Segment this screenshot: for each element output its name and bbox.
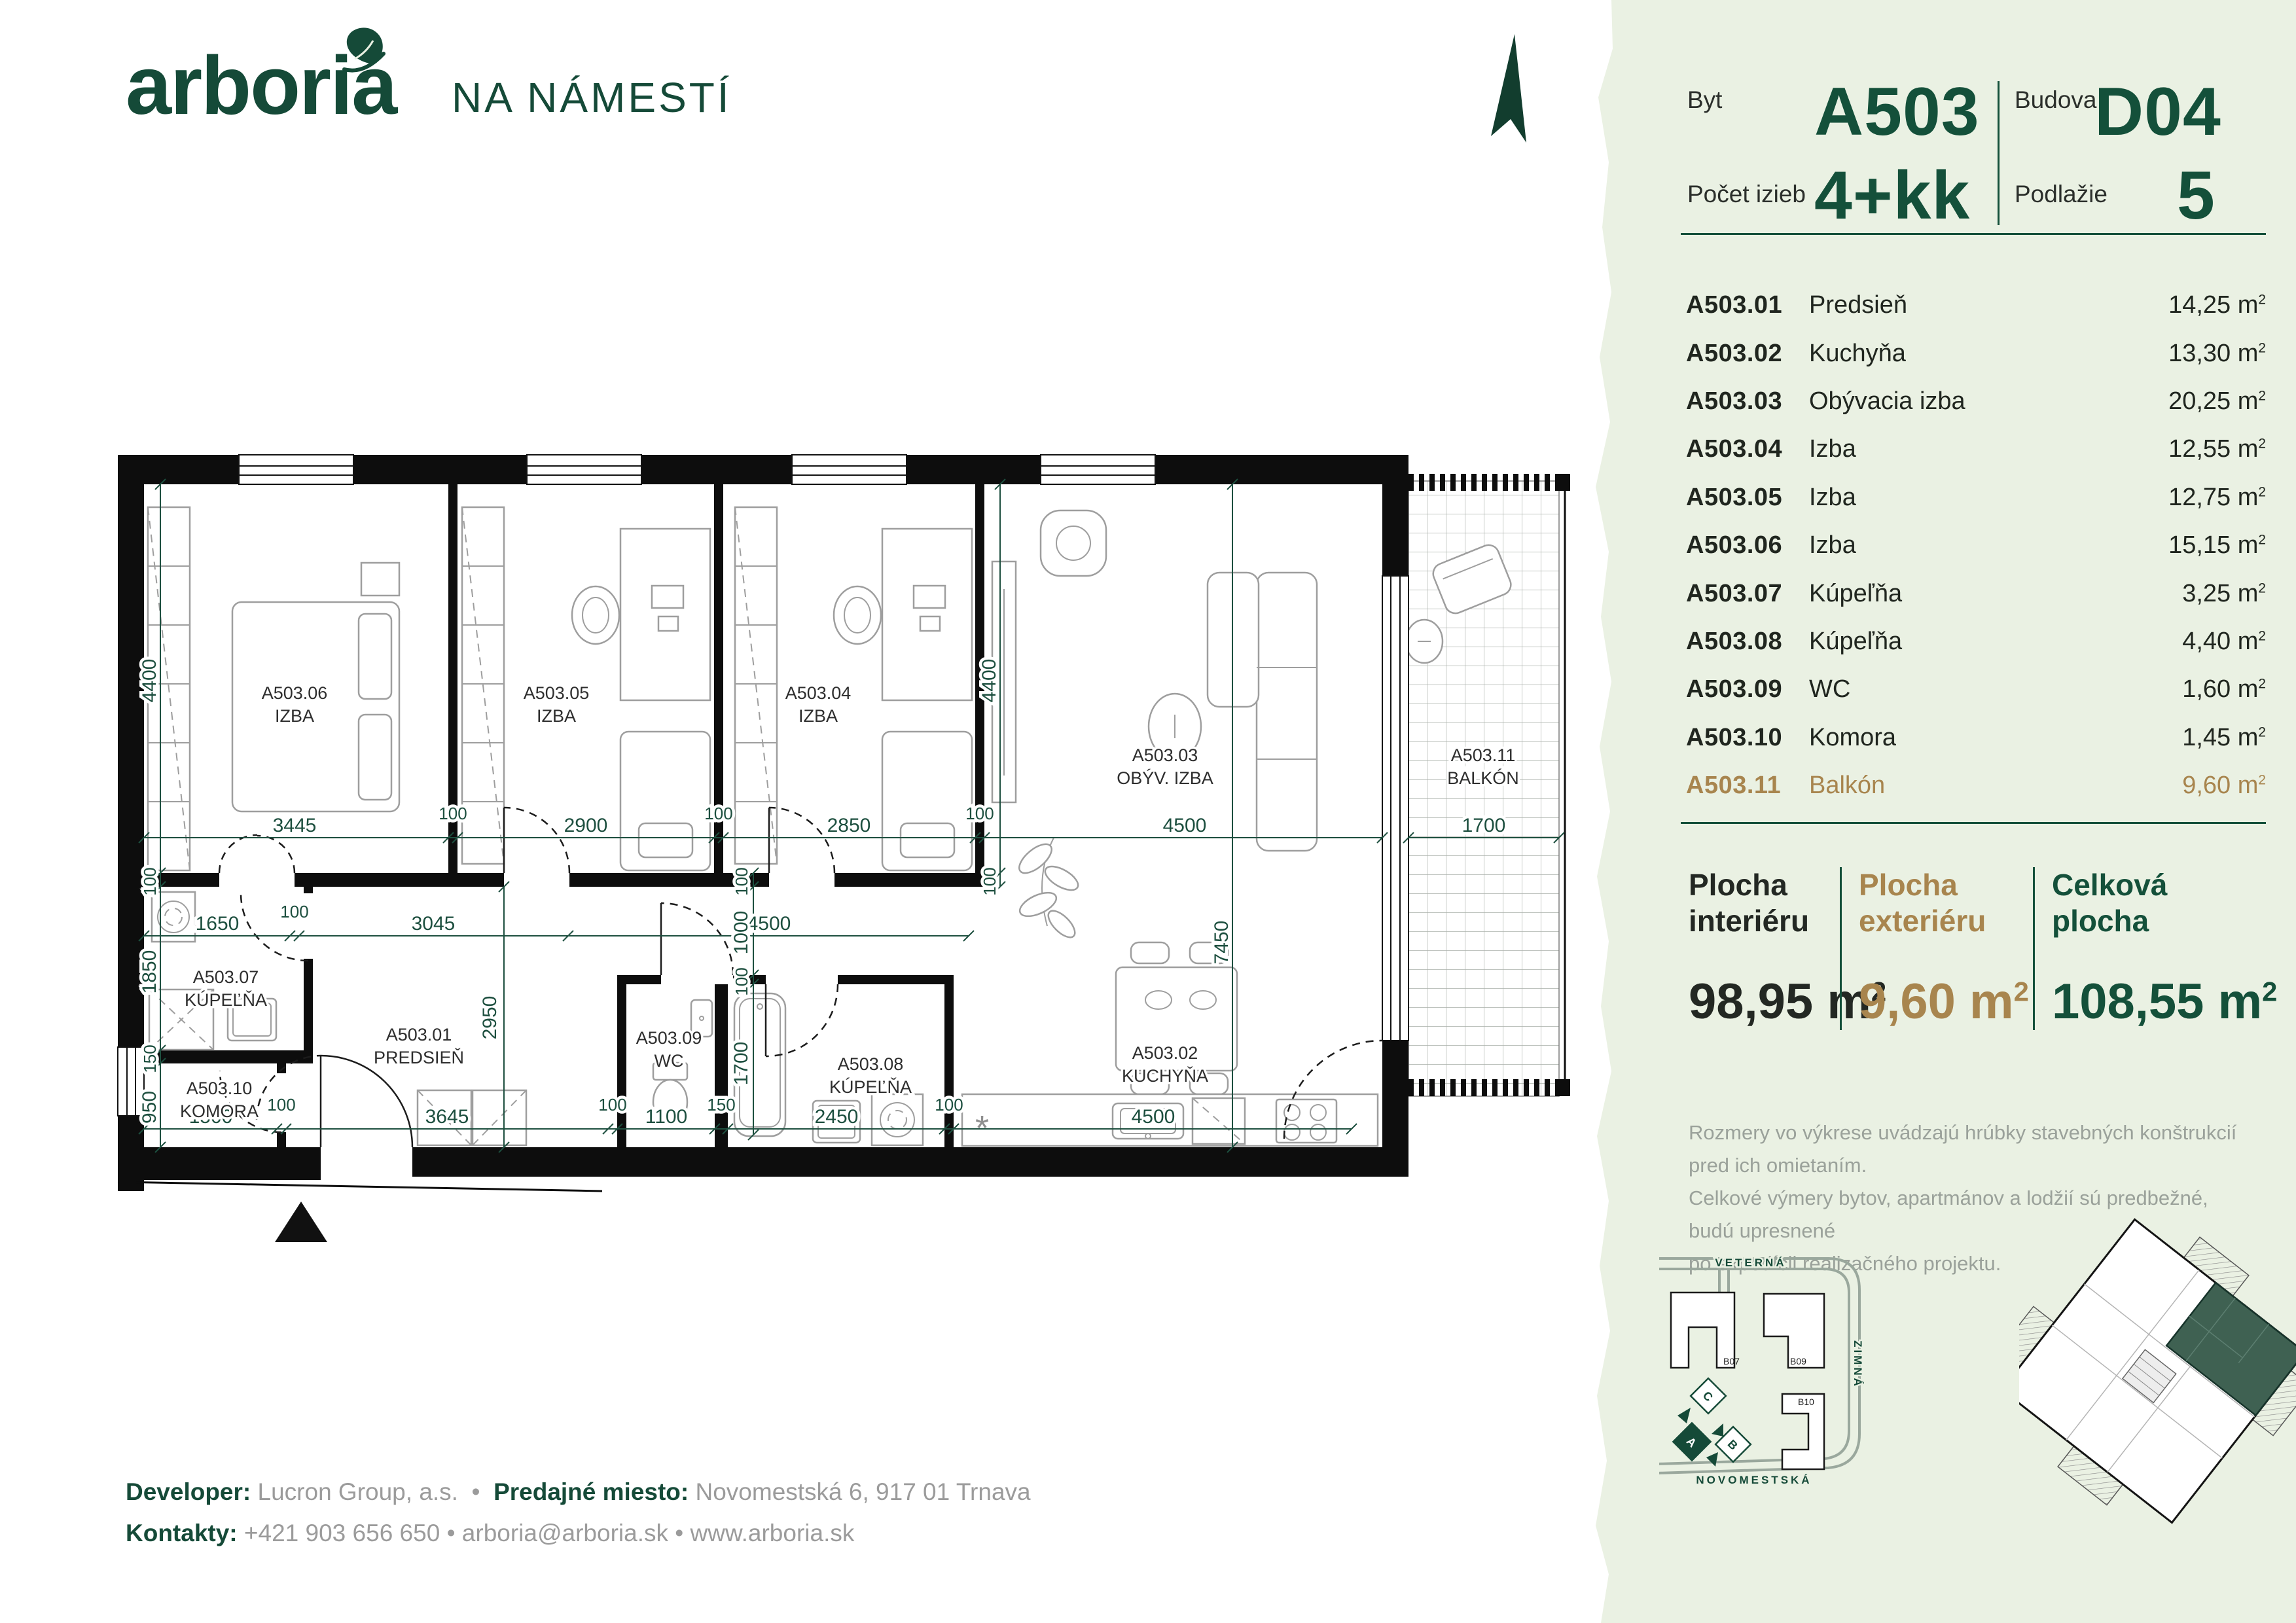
svg-text:4500: 4500 xyxy=(1163,815,1207,836)
svg-text:A503.07: A503.07 xyxy=(193,967,259,987)
svg-text:100: 100 xyxy=(267,1095,295,1115)
svg-text:1850: 1850 xyxy=(139,950,160,994)
svg-text:1000: 1000 xyxy=(730,911,752,955)
svg-text:100: 100 xyxy=(965,804,994,823)
table-row: A503.01Predsieň14,25 m2 xyxy=(1686,281,2266,329)
budova-label: Budova xyxy=(2015,86,2097,114)
byt-label: Byt xyxy=(1687,86,1722,114)
svg-text:4500: 4500 xyxy=(1132,1106,1175,1128)
building-b09-label: B09 xyxy=(1790,1356,1806,1366)
table-row: A503.06Izba15,15 m2 xyxy=(1686,522,2266,569)
svg-text:2450: 2450 xyxy=(815,1106,859,1128)
leaf-icon xyxy=(332,26,404,79)
svg-text:100: 100 xyxy=(704,804,732,823)
svg-text:4400: 4400 xyxy=(139,659,160,703)
street-zimna: ZIMNÁ xyxy=(1852,1340,1864,1389)
svg-text:2850: 2850 xyxy=(827,815,871,836)
developer-label: Developer: xyxy=(126,1478,251,1505)
footer: Developer: Lucron Group, a.s. • Predajné… xyxy=(126,1471,1031,1554)
svg-text:A503.01: A503.01 xyxy=(386,1025,452,1044)
svg-text:IZBA: IZBA xyxy=(537,706,576,726)
byt-value: A503 xyxy=(1814,73,1980,151)
svg-text:A503.08: A503.08 xyxy=(838,1054,904,1074)
svg-text:100: 100 xyxy=(598,1095,626,1115)
svg-text:KÚPEĽŇA: KÚPEĽŇA xyxy=(185,990,267,1010)
svg-text:3645: 3645 xyxy=(425,1106,469,1128)
floor-locator xyxy=(2019,1171,2296,1590)
svg-text:A503.10: A503.10 xyxy=(187,1079,253,1098)
svg-text:PREDSIEŇ: PREDSIEŇ xyxy=(374,1047,464,1067)
table-row: A503.07Kúpeľňa3,25 m2 xyxy=(1686,569,2266,617)
street-novomestska: NOVOMESTSKÁ xyxy=(1696,1474,1812,1486)
svg-text:WC: WC xyxy=(655,1051,684,1071)
table-row: A503.08Kúpeľňa4,40 m2 xyxy=(1686,618,2266,666)
north-arrow-icon xyxy=(1484,31,1541,148)
svg-text:3045: 3045 xyxy=(412,913,456,935)
svg-text:150: 150 xyxy=(707,1095,735,1115)
podlazie-label: Podlažie xyxy=(2015,181,2108,208)
kontakty-label: Kontakty: xyxy=(126,1520,238,1546)
svg-text:100: 100 xyxy=(280,902,308,921)
table-row: A503.05Izba12,75 m2 xyxy=(1686,474,2266,522)
building-b10-label: B10 xyxy=(1798,1397,1814,1407)
podlazie-value: 5 xyxy=(2177,157,2215,235)
area-summary: Plochainteriéru 98,95 m2 Plochaexteriéru… xyxy=(1689,867,2265,1030)
svg-text:1700: 1700 xyxy=(1462,815,1506,836)
svg-text:A503.06: A503.06 xyxy=(262,683,328,703)
svg-text:100: 100 xyxy=(732,967,751,995)
pocet-izieb-value: 4+kk xyxy=(1814,157,1970,235)
flat-sheet: arboria NA NÁMESTÍ Byt A503 Budova D04 P… xyxy=(0,0,2296,1623)
block-a: A xyxy=(1672,1422,1711,1461)
svg-text:100: 100 xyxy=(980,867,999,895)
svg-text:A503.11: A503.11 xyxy=(1451,745,1516,765)
dimension-lines: 3445 100 2900 100 2850 100 4500 1700 440… xyxy=(139,479,1564,1152)
svg-text:7450: 7450 xyxy=(1211,921,1232,965)
svg-text:A503.09: A503.09 xyxy=(636,1028,702,1048)
room-table: A503.01Predsieň14,25 m2 A503.02Kuchyňa13… xyxy=(1686,281,2266,810)
header-divider xyxy=(1998,81,2000,225)
table-row: A503.04Izba12,55 m2 xyxy=(1686,425,2266,473)
svg-text:100: 100 xyxy=(439,804,467,823)
svg-text:100: 100 xyxy=(732,867,751,895)
svg-text:KOMORA: KOMORA xyxy=(180,1101,259,1121)
entrance-arrow-icon xyxy=(275,1202,327,1242)
svg-text:1650: 1650 xyxy=(196,913,240,935)
svg-text:A503.03: A503.03 xyxy=(1132,745,1198,765)
table-row: A503.03Obývacia izba20,25 m2 xyxy=(1686,378,2266,425)
summary-total: Celkováplocha 108,55 m2 xyxy=(2033,867,2265,1030)
pocet-izieb-label: Počet izieb xyxy=(1687,181,1806,208)
svg-text:A503.05: A503.05 xyxy=(524,683,590,703)
svg-text:3445: 3445 xyxy=(273,815,317,836)
svg-text:1700: 1700 xyxy=(730,1042,752,1086)
svg-text:4400: 4400 xyxy=(978,659,1000,703)
street-veterna: VETERNÁ xyxy=(1715,1257,1786,1269)
svg-text:100: 100 xyxy=(935,1095,963,1115)
summary-exterior: Plochaexteriéru 9,60 m2 xyxy=(1840,867,2033,1030)
svg-text:A503.02: A503.02 xyxy=(1132,1043,1198,1063)
site-minimap: VETERNÁ ZIMNÁ NOVOMESTSKÁ B07 B09 B10 C … xyxy=(1659,1240,1901,1508)
svg-text:IZBA: IZBA xyxy=(798,706,838,726)
project-name: NA NÁMESTÍ xyxy=(452,73,732,122)
plant xyxy=(1014,838,1082,942)
svg-text:1100: 1100 xyxy=(645,1106,688,1128)
svg-text:950: 950 xyxy=(139,1091,160,1124)
table-row-balkon: A503.11Balkón9,60 m2 xyxy=(1686,762,2266,810)
svg-text:OBÝV. IZBA: OBÝV. IZBA xyxy=(1117,768,1213,788)
building-b07-label: B07 xyxy=(1723,1356,1740,1366)
summary-interior: Plochainteriéru 98,95 m2 xyxy=(1689,867,1840,1030)
budova-value: D04 xyxy=(2094,73,2221,151)
table-bottom-rule xyxy=(1681,822,2266,824)
balcony-sliding-door xyxy=(1382,576,1408,1041)
table-row: A503.09WC1,60 m2 xyxy=(1686,666,2266,713)
svg-text:KÚPEĽŇA: KÚPEĽŇA xyxy=(829,1077,912,1097)
svg-text:BALKÓN: BALKÓN xyxy=(1447,768,1519,788)
floor-plan: * xyxy=(98,419,1571,1243)
table-row: A503.02Kuchyňa13,30 m2 xyxy=(1686,329,2266,377)
svg-text:4500: 4500 xyxy=(747,913,791,935)
svg-text:KUCHYŇA: KUCHYŇA xyxy=(1122,1065,1208,1086)
svg-text:100: 100 xyxy=(140,867,160,895)
table-top-rule xyxy=(1681,233,2266,235)
table-row: A503.10Komora1,45 m2 xyxy=(1686,714,2266,762)
block-c: C xyxy=(1691,1378,1726,1414)
svg-text:IZBA: IZBA xyxy=(275,706,314,726)
svg-text:150: 150 xyxy=(140,1044,160,1073)
predajne-label: Predajné miesto: xyxy=(493,1478,689,1505)
svg-text:2900: 2900 xyxy=(564,815,608,836)
svg-text:A503.04: A503.04 xyxy=(785,683,852,703)
svg-text:2950: 2950 xyxy=(479,996,501,1040)
